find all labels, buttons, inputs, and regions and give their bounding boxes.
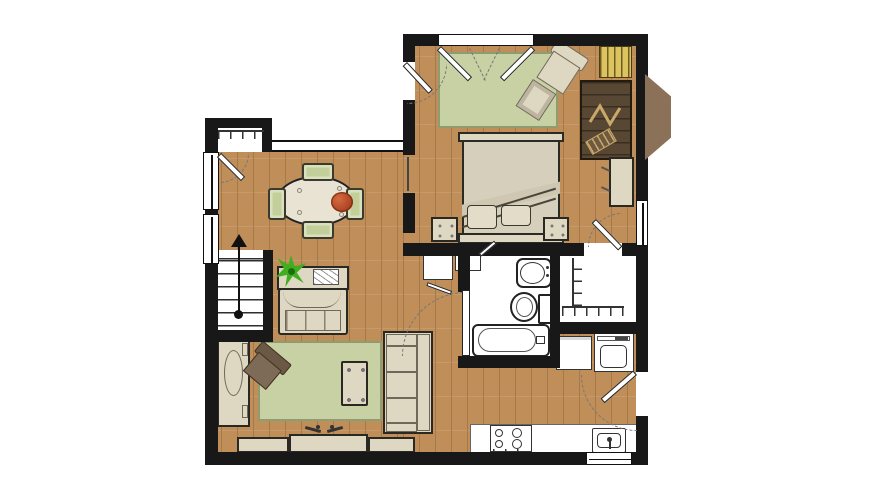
stair-rail-line	[238, 246, 240, 314]
bathtub-basin	[478, 328, 536, 352]
plant-center	[288, 268, 295, 275]
coat-closet-hanger-ticks	[218, 132, 264, 139]
toilet-seat	[516, 297, 533, 317]
media-console-left	[237, 437, 289, 453]
wall-closet-bottom	[550, 322, 648, 334]
entry-door-opening	[636, 372, 648, 416]
window-mullion	[211, 155, 213, 209]
bathtub-faucet	[536, 336, 545, 344]
sofa-cushion-3	[386, 398, 417, 423]
closet-hanger-ticks-vertical	[574, 260, 582, 306]
wall-bathroom-right	[550, 243, 560, 358]
place-setting-dot	[297, 188, 302, 193]
bed-pillow-right	[501, 205, 531, 226]
wall-stairs-bottom	[205, 330, 273, 342]
cabinet-oval-detail	[224, 350, 243, 396]
dryer-drum	[600, 345, 627, 368]
storage-cabinet	[217, 335, 250, 427]
kitchen-sink	[592, 428, 626, 453]
window-mullion-3	[642, 203, 644, 245]
stair-rail-newel-dot	[234, 310, 243, 319]
wall-bathroom-bottom	[458, 356, 560, 368]
window-mullion-4	[589, 459, 631, 461]
sofa-arm-bottom	[386, 423, 417, 432]
dining-chair-top	[302, 163, 334, 181]
coffee-table	[341, 361, 368, 406]
writing-desk	[609, 157, 634, 207]
tv-dot-2	[330, 425, 334, 429]
dryer	[594, 333, 634, 372]
bathroom	[466, 256, 556, 360]
bed-headboard	[458, 132, 564, 142]
burner-4	[512, 439, 522, 449]
window-left	[203, 152, 219, 210]
linen-cabinet	[423, 254, 453, 280]
media-console-right	[368, 437, 415, 453]
window-bedroom-right	[636, 200, 648, 246]
window-kitchen	[586, 452, 632, 465]
loveseat	[278, 288, 348, 335]
dining-chair-bottom	[302, 221, 334, 239]
range-stove	[490, 425, 532, 452]
window-dining-band	[272, 140, 403, 152]
burner-2	[512, 428, 522, 438]
wall-bottom-exterior	[205, 452, 648, 465]
place-setting-dot-2	[297, 210, 302, 215]
wall-bedroom-left-lower	[403, 193, 415, 233]
nightstand-left	[431, 217, 458, 242]
place-setting-dot-4	[339, 212, 344, 217]
floor-plan-canvas	[0, 0, 869, 500]
dining-chair-left	[268, 188, 286, 220]
wall-bedroom-left-mid	[403, 100, 415, 155]
vanity-faucet-dot-2	[546, 274, 549, 277]
bed-pillow-left	[467, 205, 497, 229]
cabinet-handle	[242, 343, 248, 356]
hall-opening-stop-line	[407, 157, 409, 191]
washer	[556, 336, 592, 370]
wall-stairs-right	[263, 250, 273, 330]
loveseat-back	[283, 291, 341, 308]
burner	[495, 429, 503, 437]
walk-in-closet	[560, 256, 636, 322]
tv-dot	[316, 425, 320, 429]
wall-bedroom-left-upper	[403, 34, 415, 62]
vanity-faucet-dot	[546, 266, 549, 269]
bedroom-closet-opening	[438, 34, 534, 46]
stair-arrow-head	[231, 234, 247, 247]
loveseat-seat	[285, 310, 341, 331]
cabinet-handle-2	[242, 405, 248, 418]
wall-bathroom-left	[458, 243, 470, 292]
bay-window	[645, 74, 671, 160]
sink-faucet-stem	[609, 441, 611, 449]
dryer-control-display	[615, 337, 628, 340]
sofa-cushion-2	[386, 372, 417, 398]
window-mullion-2	[211, 217, 213, 263]
burner-3	[495, 440, 503, 448]
bathroom-door-leaf	[462, 290, 470, 356]
nightstand-right	[543, 217, 569, 241]
book-storage	[599, 46, 632, 78]
closet-hanger-ticks-horizontal	[562, 308, 624, 316]
flower-centerpiece	[331, 192, 353, 212]
window-left-2	[203, 214, 219, 264]
media-console-center	[289, 434, 368, 453]
place-setting-dot-3	[337, 186, 342, 191]
dark-desk	[580, 80, 632, 160]
console-tray	[313, 269, 339, 285]
vanity-basin	[520, 262, 545, 284]
